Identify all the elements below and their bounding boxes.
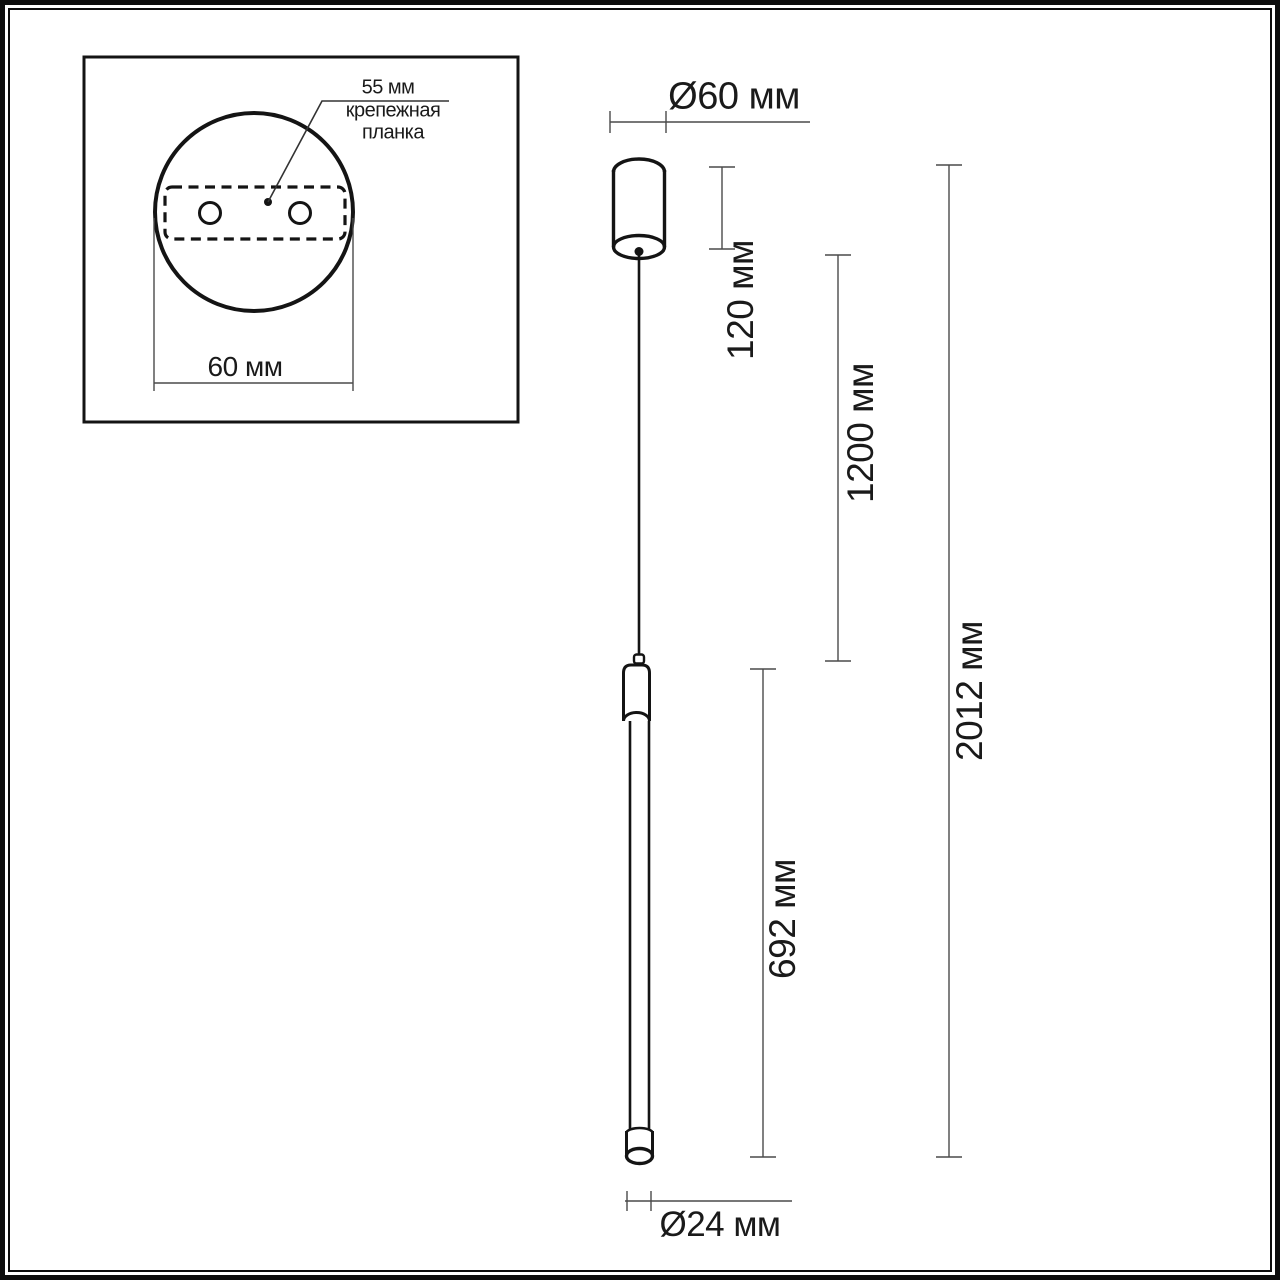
dimension-lines-group bbox=[610, 111, 962, 1211]
canopy-height-label: 120 мм bbox=[720, 240, 762, 360]
tube-diameter-label: Ø24 мм bbox=[659, 1205, 780, 1245]
line-art-canvas bbox=[0, 0, 1280, 1280]
lamp-holder-bottom-arc bbox=[624, 713, 650, 722]
inset-bar-spacing-label: 55 мм bbox=[362, 77, 415, 100]
mount-inset-group bbox=[84, 57, 518, 422]
inset-base-width-label: 60 мм bbox=[208, 351, 283, 383]
end-cap-bottom-ellipse bbox=[627, 1149, 653, 1164]
screw-hole-right bbox=[290, 203, 311, 224]
canopy-diameter-label: Ø60 мм bbox=[668, 76, 800, 119]
inset-part-label-line2: планка bbox=[346, 122, 441, 144]
inset-part-label-line1: крепежная bbox=[346, 100, 441, 122]
screw-hole-left bbox=[200, 203, 221, 224]
tube-length-label: 692 мм bbox=[762, 859, 804, 979]
canopy-circle bbox=[155, 113, 353, 311]
cable-length-label: 1200 мм bbox=[840, 363, 882, 503]
end-cap-top-arc bbox=[627, 1128, 653, 1133]
canopy-top-arc bbox=[614, 159, 665, 172]
dimension-drawing-page: 55 мм крепежная планка 60 мм Ø60 мм 120 … bbox=[0, 0, 1280, 1280]
cable-grip-knob bbox=[634, 655, 644, 664]
total-height-label: 2012 мм bbox=[949, 621, 991, 761]
mounting-bar-dashed-rect bbox=[165, 187, 345, 239]
inset-part-label: крепежная планка bbox=[346, 100, 441, 143]
inset-box bbox=[84, 57, 518, 422]
lamp-side-view-group bbox=[614, 159, 665, 1164]
